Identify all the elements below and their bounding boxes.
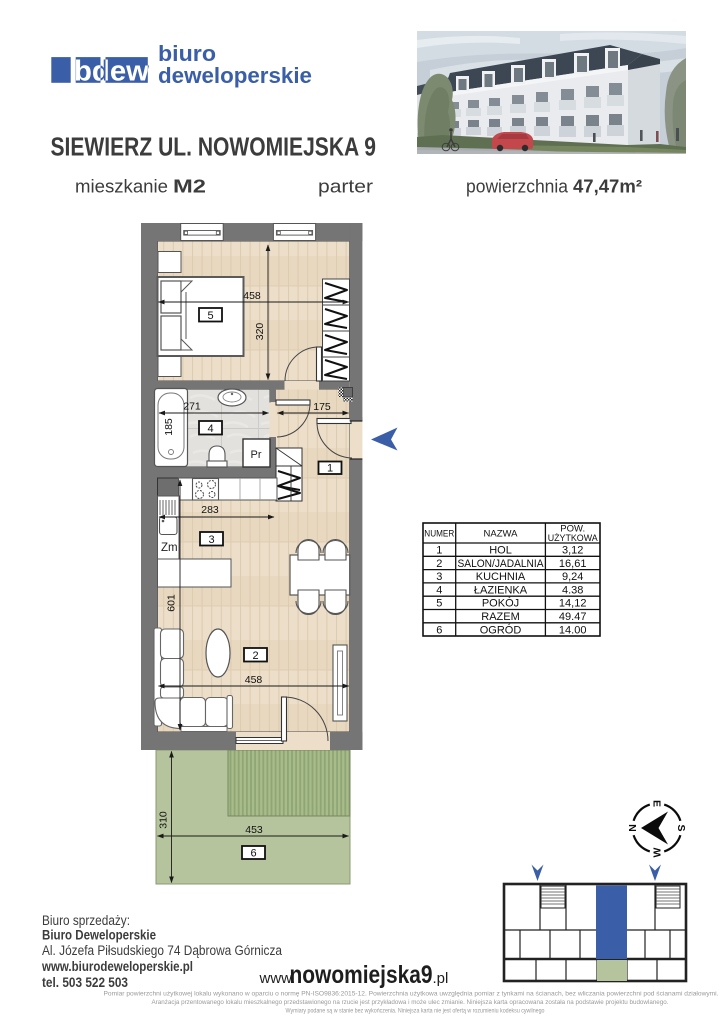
svg-text:2: 2 <box>252 650 258 662</box>
svg-text:3: 3 <box>436 571 442 583</box>
svg-text:powierzchnia: powierzchnia <box>466 177 569 197</box>
svg-text:458: 458 <box>243 290 261 302</box>
svg-text:tel. 503 522 503: tel. 503 522 503 <box>42 975 128 990</box>
svg-text:parter: parter <box>318 177 373 197</box>
svg-text:POKÓJ: POKÓJ <box>482 597 519 610</box>
svg-text:175: 175 <box>313 401 331 413</box>
svg-text:1: 1 <box>327 463 333 475</box>
svg-text:6: 6 <box>436 624 442 636</box>
svg-text:453: 453 <box>245 824 263 836</box>
svg-text:mieszkanie: mieszkanie <box>75 177 168 197</box>
svg-text:185: 185 <box>163 418 175 436</box>
svg-text:6: 6 <box>250 848 256 860</box>
svg-text:ŁAZIENKA: ŁAZIENKA <box>474 584 528 596</box>
svg-text:16,61: 16,61 <box>559 558 587 570</box>
svg-text:N: N <box>627 824 639 832</box>
svg-text:bdew: bdew <box>74 56 149 88</box>
svg-text:Pr: Pr <box>251 449 262 461</box>
svg-text:Al. Józefa Piłsudskiego 74 Dąb: Al. Józefa Piłsudskiego 74 Dąbrowa Górni… <box>42 943 282 958</box>
svg-text:RAZEM: RAZEM <box>481 611 520 623</box>
svg-text:9,24: 9,24 <box>562 571 583 583</box>
svg-text:HOL: HOL <box>489 545 512 557</box>
svg-text:SALON/JADALNIA: SALON/JADALNIA <box>458 558 545 570</box>
svg-text:283: 283 <box>201 504 219 516</box>
svg-text:47,47m²: 47,47m² <box>573 177 642 197</box>
svg-text:SIEWIERZ UL. NOWOMIEJSKA 9: SIEWIERZ UL. NOWOMIEJSKA 9 <box>51 134 377 162</box>
svg-text:Biuro Deweloperskie: Biuro Deweloperskie <box>42 928 156 943</box>
svg-text:NAZWA: NAZWA <box>484 529 519 540</box>
svg-text:3: 3 <box>208 534 214 546</box>
svg-text:Aranżacja przentowanego lokalu: Aranżacja przentowanego lokalu mieszkaln… <box>152 999 669 1006</box>
svg-text:NUMER: NUMER <box>424 529 454 540</box>
svg-text:Zm: Zm <box>161 542 178 554</box>
svg-text:4: 4 <box>207 423 213 435</box>
svg-text:49.47: 49.47 <box>559 611 587 623</box>
svg-text:271: 271 <box>183 401 201 413</box>
svg-text:320: 320 <box>254 323 266 341</box>
svg-text:KUCHNIA: KUCHNIA <box>476 571 526 583</box>
svg-text:E: E <box>651 800 663 807</box>
svg-text:M2: M2 <box>173 177 206 197</box>
svg-text:4.38: 4.38 <box>562 584 583 596</box>
svg-text:4: 4 <box>436 584 442 596</box>
svg-text:5: 5 <box>207 310 213 322</box>
svg-text:UŻYTKOWA: UŻYTKOWA <box>548 533 599 544</box>
svg-text:14.00: 14.00 <box>559 624 587 636</box>
svg-text:310: 310 <box>158 811 170 829</box>
svg-text:deweloperskie: deweloperskie <box>158 63 312 88</box>
svg-text:OGRÓD: OGRÓD <box>480 623 522 636</box>
svg-text:nowomiejska9: nowomiejska9 <box>290 961 433 989</box>
svg-text:3,12: 3,12 <box>562 545 583 557</box>
svg-text:5: 5 <box>436 598 442 610</box>
svg-text:.pl: .pl <box>433 970 449 987</box>
svg-text:Pomiar powierzchni użytkowej l: Pomiar powierzchni użytkowej lokalu wyko… <box>104 991 719 998</box>
svg-text:2: 2 <box>436 558 442 570</box>
svg-text:Biuro sprzedaży:: Biuro sprzedaży: <box>42 913 130 928</box>
svg-text:458: 458 <box>245 674 263 686</box>
svg-text:601: 601 <box>166 594 178 612</box>
svg-text:S: S <box>675 824 687 831</box>
svg-text:14,12: 14,12 <box>559 598 587 610</box>
svg-text:Wymiary podane są w stanie bez: Wymiary podane są w stanie bez wykończen… <box>286 1008 545 1015</box>
svg-text:1: 1 <box>436 545 442 557</box>
svg-text:W: W <box>652 847 664 857</box>
svg-text:www.biurodeweloperskie.pl: www.biurodeweloperskie.pl <box>41 959 193 974</box>
